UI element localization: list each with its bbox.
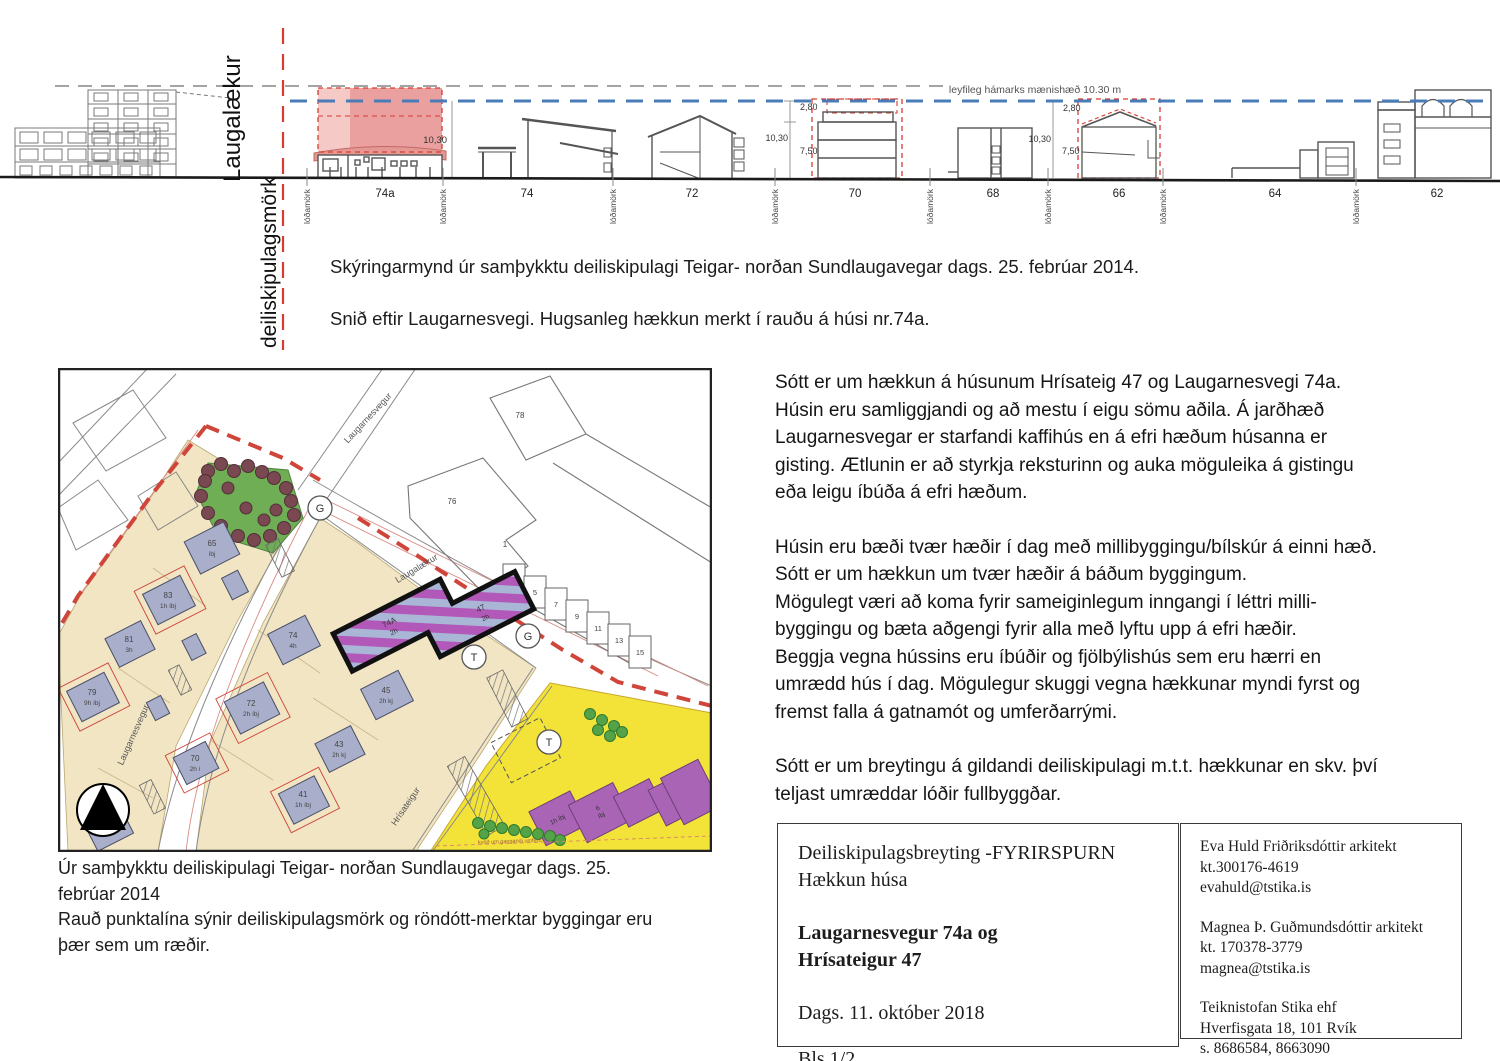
lot-74: 74 <box>289 631 298 640</box>
architect1-email: evahuld@tstika.is <box>1200 878 1461 899</box>
house-numbers: 74a 74 72 70 68 66 64 62 <box>375 188 1443 200</box>
project-address-2: Hrísateigur 47 <box>798 947 1178 974</box>
dim-66-mid: 10,30 <box>1028 134 1051 144</box>
dim-66-low: 7,50 <box>1062 146 1080 156</box>
rowhouse-9: 9 <box>575 612 579 621</box>
lot-83: 83 <box>164 591 173 600</box>
site-plan-map: 3 5 7 9 11 13 15 <box>58 368 712 852</box>
elevation-caption: Skýringarmynd úr samþykktu deiliskipulag… <box>330 228 1160 358</box>
lot-label: lóðamörk <box>1158 188 1168 224</box>
max-height-note: leyfileg hámarks mænishæð 10.30 m <box>949 84 1121 96</box>
title-block-project: Deiliskipulagsbreyting -FYRIRSPURN Hækku… <box>777 823 1179 1047</box>
house-72: 72 <box>686 188 699 200</box>
lot-65-sub: íbj <box>209 551 216 558</box>
lot-78: 78 <box>516 411 525 420</box>
house-62: 62 <box>1431 188 1444 200</box>
elevation-caption-line2: Snið eftir Laugarnesvegi. Hugsanleg hækk… <box>330 306 1160 332</box>
dim-70-mid: 10,30 <box>765 133 788 143</box>
dim-70-low: 7,50 <box>800 146 818 156</box>
lot-72-sub: 2h íbj <box>243 711 259 718</box>
lot-81-sub: 3h <box>125 647 133 654</box>
lot-70: 70 <box>191 754 200 763</box>
lot-1: 1 <box>503 540 508 549</box>
title-block-line2: Hækkun húsa <box>798 867 1178 894</box>
marker-t1: T <box>471 652 478 664</box>
dim-70-top: 2,80 <box>800 102 818 112</box>
lot-74-sub: 4h <box>289 643 297 650</box>
document-page: 10,30 2,80 10,30 7,50 <box>0 0 1500 1061</box>
lot-label: lóðamörk <box>770 188 780 224</box>
lot-label: lóðamörk <box>1351 188 1361 224</box>
rowhouse-7: 7 <box>554 600 558 609</box>
house-64: 64 <box>1269 188 1282 200</box>
dim-66-top: 2,80 <box>1063 103 1081 113</box>
architect2-name: Magnea Þ. Guðmundsdóttir arkitekt <box>1200 918 1461 939</box>
house-70: 70 <box>849 188 862 200</box>
lot-65: 65 <box>208 539 217 548</box>
map-caption: Úr samþykktu deiliskipulagi Teigar- norð… <box>58 856 706 958</box>
office-address: Hverfisgata 18, 101 Rvík <box>1200 1019 1461 1040</box>
rowhouse-11: 11 <box>594 624 602 633</box>
lot-boundary-labels: lóðamörk lóðamörk lóðamörk lóðamörk lóða… <box>302 168 1361 224</box>
lot-45-sub: 2h kj <box>379 698 393 705</box>
rowhouse-5: 5 <box>533 588 537 597</box>
lot-41: 41 <box>299 790 308 799</box>
building-62 <box>1378 90 1491 178</box>
project-address-1: Laugarnesvegur 74a og <box>798 920 1178 947</box>
house-66: 66 <box>1113 188 1126 200</box>
elevation-caption-line1: Skýringarmynd úr samþykktu deiliskipulag… <box>330 254 1160 280</box>
body-paragraph-2: Húsin eru bæði tvær hæðir í dag með mill… <box>775 534 1485 727</box>
north-arrow <box>77 784 129 836</box>
lot-41-sub: 1h íbj <box>295 802 311 809</box>
lot-81: 81 <box>125 635 134 644</box>
building-72 <box>648 116 744 178</box>
lot-43: 43 <box>335 740 344 749</box>
lot-label: lóðamörk <box>1043 188 1053 224</box>
rowhouse-13: 13 <box>615 636 623 645</box>
building-68 <box>948 128 1032 178</box>
office-name: Teiknistofan Stika ehf <box>1200 998 1461 1019</box>
body-paragraph-3: Sótt er um breytingu á gildandi deiliski… <box>775 753 1485 808</box>
architect1-id: kt.300176-4619 <box>1200 858 1461 879</box>
marker-g1: G <box>316 503 325 515</box>
boundary-axis-label: deiliskipulagsmörk <box>258 176 281 348</box>
marker-g2: G <box>524 631 533 643</box>
building-64 <box>1232 142 1354 178</box>
lot-76: 76 <box>448 497 457 506</box>
building-74a <box>318 155 442 178</box>
marker-t2: T <box>546 737 553 749</box>
house-68: 68 <box>987 188 1000 200</box>
house-74a: 74a <box>375 188 395 200</box>
architect2-id: kt. 170378-3779 <box>1200 938 1461 959</box>
lot-45: 45 <box>382 686 391 695</box>
architect1-name: Eva Huld Friðriksdóttir arkitekt <box>1200 837 1461 858</box>
architect2-email: magnea@tstika.is <box>1200 959 1461 980</box>
lot-label: lóðamörk <box>302 188 312 224</box>
office-phone: s. 8686584, 8663090 <box>1200 1039 1461 1060</box>
lot-label: lóðamörk <box>608 188 618 224</box>
rowhouse-15: 15 <box>636 648 644 657</box>
building-74a-highlight <box>314 88 446 161</box>
dim-74a-label: 10,30 <box>423 135 447 146</box>
body-paragraph-1: Sótt er um hækkun á húsunum Hrísateig 47… <box>775 369 1485 507</box>
lot-72: 72 <box>247 699 256 708</box>
lot-label: lóðamörk <box>925 188 935 224</box>
lot-83-sub: 1h íbj <box>160 603 176 610</box>
title-block-date: Dags. 11. október 2018 <box>798 1000 1178 1027</box>
body-text: Sótt er um hækkun á húsunum Hrísateig 47… <box>775 369 1485 835</box>
context-buildings-sketch <box>15 90 230 178</box>
title-block-contacts: Eva Huld Friðriksdóttir arkitekt kt.3001… <box>1180 823 1462 1039</box>
title-block-page: Bls.1/2 <box>798 1046 1178 1061</box>
street-axis-label: Laugalækur <box>219 55 246 182</box>
lot-70-sub: 2h í <box>190 766 201 773</box>
building-74 <box>478 119 618 178</box>
lot-79: 79 <box>88 688 97 697</box>
house-74: 74 <box>521 188 534 200</box>
lot-label: lóðamörk <box>438 188 448 224</box>
title-block-line1: Deiliskipulagsbreyting -FYRIRSPURN <box>798 840 1178 867</box>
lot-79-sub: 9h íbj <box>84 700 100 707</box>
lot-43-sub: 2h kj <box>332 752 346 759</box>
